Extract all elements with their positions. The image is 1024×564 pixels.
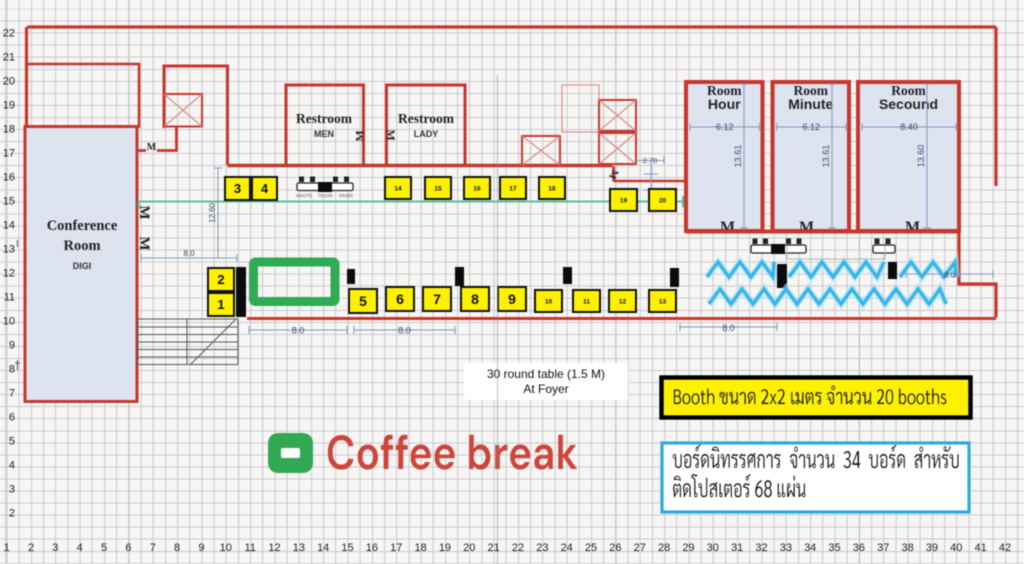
svg-text:27: 27 [634, 542, 646, 554]
svg-text:7: 7 [9, 388, 15, 400]
svg-text:M: M [136, 236, 152, 250]
svg-text:4: 4 [9, 460, 15, 472]
svg-text:18: 18 [548, 185, 556, 192]
svg-text:12.60: 12.60 [208, 202, 217, 223]
svg-text:1: 1 [217, 297, 224, 312]
svg-text:23: 23 [536, 542, 548, 554]
svg-text:3: 3 [9, 484, 15, 496]
svg-text:42: 42 [999, 542, 1011, 554]
svg-text:32: 32 [755, 542, 767, 554]
svg-text:21: 21 [3, 52, 15, 64]
svg-text:26: 26 [609, 542, 621, 554]
svg-text:12: 12 [619, 298, 627, 305]
svg-text:37: 37 [877, 542, 889, 554]
svg-text:M: M [353, 130, 367, 141]
svg-text:8: 8 [9, 364, 15, 376]
svg-text:20: 20 [3, 76, 15, 88]
svg-text:13.61: 13.61 [733, 145, 743, 168]
svg-text:At Foyer: At Foyer [523, 382, 568, 396]
svg-text:34: 34 [804, 542, 816, 554]
svg-text:Minute: Minute [788, 96, 833, 112]
svg-text:4: 4 [77, 542, 83, 554]
svg-text:8.0: 8.0 [944, 271, 956, 280]
svg-text:16: 16 [473, 185, 481, 192]
svg-text:30: 30 [707, 542, 719, 554]
svg-text:7: 7 [433, 291, 441, 307]
svg-text:70x100: 70x100 [318, 193, 333, 198]
svg-text:Secound: Secound [879, 96, 938, 112]
svg-text:6: 6 [125, 542, 131, 554]
svg-text:LADY: LADY [414, 129, 439, 139]
svg-text:31: 31 [731, 542, 743, 554]
svg-text:2.70: 2.70 [643, 156, 658, 165]
svg-text:4: 4 [261, 181, 269, 196]
svg-text:15: 15 [434, 185, 442, 192]
svg-text:DIGI: DIGI [73, 261, 92, 271]
svg-text:8.0: 8.0 [398, 326, 411, 336]
svg-text:33: 33 [780, 542, 792, 554]
svg-text:10: 10 [545, 298, 553, 305]
svg-text:8.0: 8.0 [292, 326, 305, 336]
svg-text:MEN: MEN [314, 129, 334, 139]
svg-text:12: 12 [3, 268, 15, 280]
svg-text:M: M [384, 129, 398, 140]
svg-text:39: 39 [926, 542, 938, 554]
svg-text:18: 18 [414, 542, 426, 554]
svg-text:36: 36 [853, 542, 865, 554]
svg-text:14: 14 [3, 220, 15, 232]
svg-text:15: 15 [341, 542, 353, 554]
svg-text:5: 5 [9, 436, 15, 448]
svg-text:9: 9 [508, 291, 516, 307]
svg-text:35: 35 [828, 542, 840, 554]
svg-text:8.0: 8.0 [722, 323, 735, 333]
svg-text:2: 2 [217, 272, 224, 287]
svg-text:21: 21 [488, 542, 500, 554]
svg-text:19: 19 [620, 197, 628, 204]
svg-text:17: 17 [3, 148, 15, 160]
svg-text:3: 3 [234, 181, 241, 196]
svg-text:6.12: 6.12 [716, 122, 734, 132]
svg-text:40: 40 [950, 542, 962, 554]
svg-text:Conference: Conference [47, 218, 118, 234]
svg-text:13: 13 [659, 298, 667, 305]
svg-text:2: 2 [9, 508, 15, 520]
svg-text:41: 41 [975, 542, 987, 554]
svg-text:15: 15 [3, 196, 15, 208]
svg-text:16: 16 [366, 542, 378, 554]
svg-text:M: M [606, 167, 620, 181]
svg-text:6: 6 [9, 412, 15, 424]
svg-text:8.40: 8.40 [900, 122, 918, 132]
svg-text:17: 17 [509, 185, 517, 192]
svg-text:7: 7 [150, 542, 156, 554]
svg-text:13.60: 13.60 [916, 145, 926, 168]
svg-text:14: 14 [394, 185, 402, 192]
svg-text:29: 29 [682, 542, 694, 554]
svg-text:M: M [147, 142, 157, 153]
svg-text:17: 17 [390, 542, 402, 554]
svg-text:6: 6 [396, 291, 404, 307]
svg-text:8.0: 8.0 [183, 249, 195, 258]
svg-text:5: 5 [101, 542, 107, 554]
svg-text:20: 20 [463, 542, 475, 554]
svg-text:8: 8 [471, 291, 479, 307]
svg-text:60x(70): 60x(70) [296, 193, 312, 198]
svg-text:6.12: 6.12 [802, 122, 820, 132]
svg-text:13: 13 [293, 542, 305, 554]
svg-text:28: 28 [658, 542, 670, 554]
svg-text:13.61: 13.61 [821, 145, 831, 168]
svg-text:Restroom: Restroom [398, 111, 455, 126]
svg-text:10: 10 [220, 542, 232, 554]
svg-text:18: 18 [3, 124, 15, 136]
svg-text:11: 11 [4, 292, 15, 304]
svg-text:16: 16 [3, 172, 15, 184]
svg-text:25: 25 [585, 542, 597, 554]
svg-text:12: 12 [268, 542, 280, 554]
svg-text:11: 11 [583, 298, 590, 305]
svg-text:20: 20 [659, 197, 667, 204]
svg-text:19: 19 [3, 100, 15, 112]
svg-text:60x(50: 60x(50 [339, 193, 353, 198]
svg-text:38: 38 [901, 542, 913, 554]
svg-text:9: 9 [198, 542, 204, 554]
svg-text:3: 3 [52, 542, 58, 554]
svg-text:30 round table (1.5 M): 30 round table (1.5 M) [487, 367, 605, 381]
svg-text:24: 24 [561, 542, 573, 554]
svg-text:5: 5 [359, 293, 367, 309]
svg-text:Hour: Hour [708, 96, 741, 112]
svg-text:8: 8 [174, 542, 180, 554]
svg-text:1: 1 [4, 542, 10, 554]
svg-text:11: 11 [244, 542, 255, 554]
svg-text:9: 9 [9, 340, 15, 352]
svg-text:Room: Room [63, 238, 100, 254]
svg-text:10: 10 [3, 316, 15, 328]
svg-text:Restroom: Restroom [296, 111, 353, 126]
svg-text:2: 2 [28, 542, 34, 554]
svg-text:22: 22 [512, 542, 524, 554]
svg-text:14: 14 [317, 542, 329, 554]
svg-text:19: 19 [439, 542, 451, 554]
svg-text:13: 13 [3, 244, 15, 256]
svg-text:22: 22 [3, 28, 15, 40]
